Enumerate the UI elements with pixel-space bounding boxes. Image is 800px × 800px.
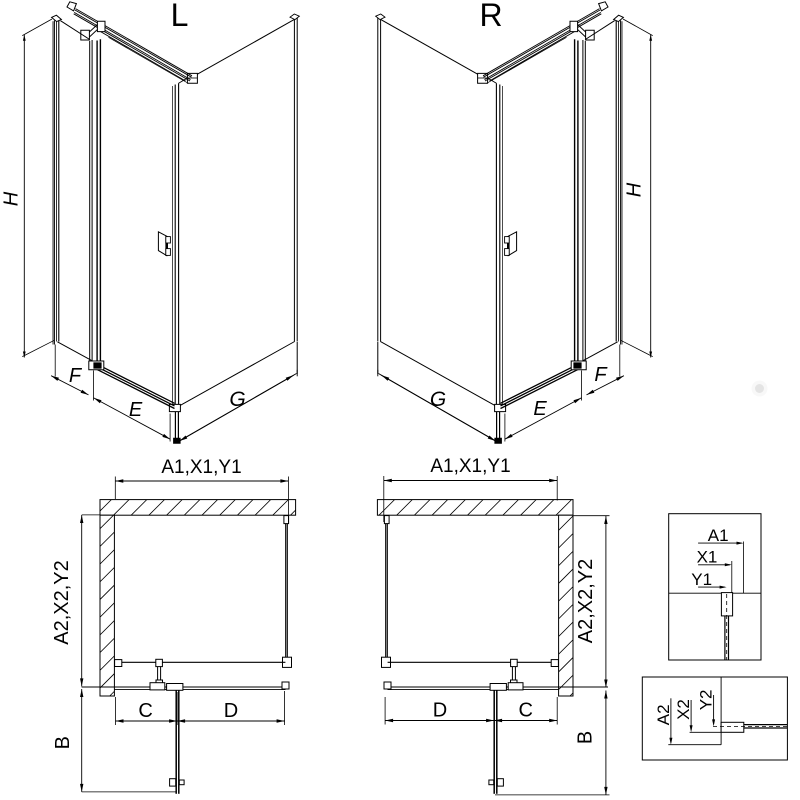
svg-text:A2,X2,Y2: A2,X2,Y2 — [575, 559, 597, 644]
svg-text:D: D — [224, 700, 238, 722]
svg-text:F: F — [594, 364, 608, 386]
svg-text:Y1: Y1 — [691, 570, 712, 589]
svg-text:F: F — [69, 365, 83, 387]
svg-text:A2: A2 — [654, 704, 673, 725]
svg-text:X2: X2 — [674, 699, 693, 720]
svg-text:A1: A1 — [708, 526, 729, 545]
svg-text:L: L — [171, 0, 189, 33]
svg-text:H: H — [624, 182, 646, 197]
svg-text:G: G — [430, 388, 446, 411]
svg-text:D: D — [433, 700, 447, 722]
svg-text:C: C — [518, 700, 532, 722]
svg-text:A1,X1,Y1: A1,X1,Y1 — [430, 456, 510, 477]
svg-text:B: B — [52, 736, 74, 749]
svg-text:E: E — [129, 399, 143, 421]
svg-text:A2,X2,Y2: A2,X2,Y2 — [51, 560, 73, 645]
svg-text:C: C — [138, 700, 152, 722]
svg-text:Y2: Y2 — [697, 690, 716, 711]
svg-text:G: G — [229, 388, 245, 411]
svg-text:R: R — [479, 0, 502, 33]
svg-text:X1: X1 — [697, 548, 718, 567]
svg-text:A1,X1,Y1: A1,X1,Y1 — [161, 457, 241, 478]
svg-text:H: H — [0, 191, 22, 206]
svg-text:E: E — [533, 398, 547, 420]
svg-text:B: B — [575, 731, 597, 744]
